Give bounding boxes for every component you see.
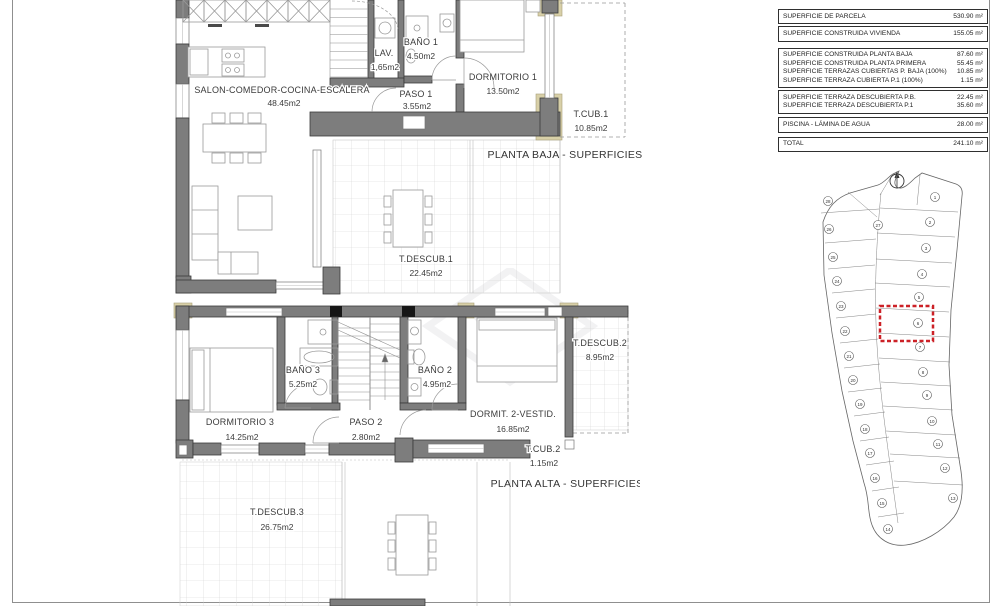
plan-planta-baja: SALON-COMEDOR-COCINA-ESCALERA 48.45m2 LA… [170, 0, 710, 300]
row-value: 22.45 m² [957, 94, 983, 102]
svg-text:11: 11 [936, 442, 941, 447]
row-label: TOTAL [783, 140, 804, 148]
plot-numbers-right: 1 2 3 4 5 6 7 8 9 10 11 12 13 [914, 193, 958, 503]
room-area-tcub1: 10.85m2 [574, 123, 607, 133]
room-area-tdescub3: 26.75m2 [260, 522, 293, 532]
svg-text:21: 21 [846, 354, 852, 359]
svg-text:15: 15 [879, 501, 885, 506]
table-row: SUPERFICIE DE PARCELA530.90 m² [778, 9, 988, 24]
room-name-tdescub1: T.DESCUB.1 [399, 254, 453, 264]
row-value: 155.05 m² [953, 30, 983, 38]
svg-text:27: 27 [875, 223, 881, 228]
stairs-alta [338, 317, 400, 410]
plan-alta-title: PLANTA ALTA - SUPERFICIES [491, 478, 640, 490]
dormitorio1-furniture [460, 0, 540, 52]
plot-strip-outline [823, 171, 962, 545]
room-area-tdescub1: 22.45m2 [409, 268, 442, 278]
terrace-tdescub3 [180, 460, 510, 606]
svg-text:26: 26 [826, 227, 832, 232]
room-area-bano3: 5.25m2 [289, 379, 318, 389]
terrace3-table [388, 515, 436, 575]
row-value: 10.85 m² [957, 68, 983, 76]
svg-text:14: 14 [885, 527, 891, 532]
table-group-open-terraces: SUPERFICIE TERRAZA DESCUBIERTA P.B.22.45… [778, 90, 988, 114]
room-name-bano2: BAÑO 2 [418, 365, 452, 375]
row-value: 87.60 m² [957, 51, 983, 59]
row-value: 241.10 m² [953, 140, 983, 148]
row-value: 1.15 m² [961, 77, 983, 85]
row-label: SUPERFICIE TERRAZA DESCUBIERTA P.B. [783, 94, 916, 102]
terrace-tdescub1 [333, 140, 560, 293]
row-label: SUPERFICIE DE PARCELA [783, 13, 866, 21]
svg-text:19: 19 [857, 402, 863, 407]
room-name-salon: SALON-COMEDOR-COCINA-ESCALERA [194, 85, 369, 95]
room-area-paso2: 2.80m2 [352, 432, 381, 442]
room-name-dormitorio1: DORMITORIO 1 [469, 72, 537, 82]
row-value: 55.45 m² [957, 60, 983, 68]
room-name-paso2: PASO 2 [349, 417, 382, 427]
svg-text:25: 25 [830, 255, 836, 260]
room-name-bano3: BAÑO 3 [286, 365, 320, 375]
room-name-dormit2: DORMIT. 2-VESTID. [470, 409, 556, 419]
svg-text:18: 18 [862, 427, 868, 432]
table-row-total: TOTAL241.10 m² [778, 137, 988, 152]
stairs-baja [330, 0, 368, 78]
living-furniture [192, 113, 272, 274]
site-plan: 1 2 3 4 5 6 7 8 9 10 11 12 13 28 27 26 2… [820, 165, 995, 565]
room-area-bano1: 4.50m2 [407, 51, 436, 61]
room-area-dormitorio1: 13.50m2 [486, 86, 519, 96]
room-area-dormitorio3: 14.25m2 [225, 432, 258, 442]
table-group-built: SUPERFICIE CONSTRUIDA PLANTA BAJA87.60 m… [778, 48, 988, 89]
plot-numbers-left: 28 27 26 25 24 23 22 21 20 19 18 17 16 1… [824, 197, 893, 534]
table-row: SUPERFICIE CONSTRUIDA VIVIENDA155.05 m² [778, 26, 988, 41]
kitchen-units [183, 0, 330, 77]
svg-text:10: 10 [929, 419, 935, 424]
svg-text:20: 20 [850, 378, 856, 383]
room-name-lav: LAV. [375, 48, 394, 58]
room-area-tdescub2: 8.95m2 [586, 352, 615, 362]
svg-text:16: 16 [872, 476, 878, 481]
surface-summary-table: SUPERFICIE DE PARCELA530.90 m² SUPERFICI… [778, 9, 988, 154]
svg-text:12: 12 [942, 466, 948, 471]
row-label: SUPERFICIE CONSTRUIDA VIVIENDA [783, 30, 900, 38]
svg-text:24: 24 [834, 279, 840, 284]
svg-text:28: 28 [825, 199, 831, 204]
room-area-bano2: 4.95m2 [423, 379, 452, 389]
svg-text:13: 13 [950, 496, 956, 501]
dormitorio2-furniture [477, 318, 557, 382]
room-name-tdescub3: T.DESCUB.3 [250, 507, 304, 517]
svg-text:17: 17 [867, 451, 873, 456]
room-area-salon: 48.45m2 [267, 98, 300, 108]
plan-baja-title: PLANTA BAJA - SUPERFICIES [488, 149, 643, 161]
row-value: 530.90 m² [953, 13, 983, 21]
plot-spine [876, 193, 898, 523]
row-label: PISCINA - LÁMINA DE AGUA [783, 121, 870, 129]
room-area-lav: 1,65m2 [371, 62, 400, 72]
north-arrow-icon [890, 171, 904, 188]
room-name-tcub2: T.CUB.2 [526, 444, 561, 454]
room-name-tdescub2: T.DESCUB.2 [573, 338, 627, 348]
drawing-sheet: SALON-COMEDOR-COCINA-ESCALERA 48.45m2 LA… [0, 0, 1001, 606]
row-label: SUPERFICIE TERRAZAS CUBIERTAS P. BAJA (1… [783, 68, 947, 76]
frame-left [12, 0, 13, 603]
plan-planta-alta: DORMITORIO 3 14.25m2 BAÑO 3 5.25m2 PASO … [170, 300, 640, 606]
room-area-paso1: 3.55m2 [403, 101, 432, 111]
terrace-tdescub2 [573, 310, 628, 433]
table-row-pool: PISCINA - LÁMINA DE AGUA28.00 m² [778, 117, 988, 132]
room-area-tcub2: 1.15m2 [530, 458, 559, 468]
room-name-tcub1: T.CUB.1 [574, 109, 609, 119]
row-label: SUPERFICIE TERRAZA DESCUBIERTA P.1 [783, 102, 913, 110]
room-name-paso1: PASO 1 [399, 89, 432, 99]
row-value: 28.00 m² [957, 121, 983, 129]
row-label: SUPERFICIE CONSTRUIDA PLANTA BAJA [783, 51, 913, 59]
row-label: SUPERFICIE TERRAZA CUBIERTA P.1 (100%) [783, 77, 923, 85]
room-name-dormitorio3: DORMITORIO 3 [206, 417, 274, 427]
svg-text:22: 22 [842, 329, 848, 334]
svg-text:23: 23 [838, 304, 844, 309]
terrace1-table [384, 190, 432, 247]
row-value: 35.60 m² [957, 102, 983, 110]
room-area-dormit2: 16.85m2 [496, 424, 529, 434]
dormitorio3-furniture [190, 348, 273, 412]
room-name-bano1: BAÑO 1 [404, 37, 438, 47]
row-label: SUPERFICIE CONSTRUIDA PLANTA PRIMERA [783, 60, 926, 68]
